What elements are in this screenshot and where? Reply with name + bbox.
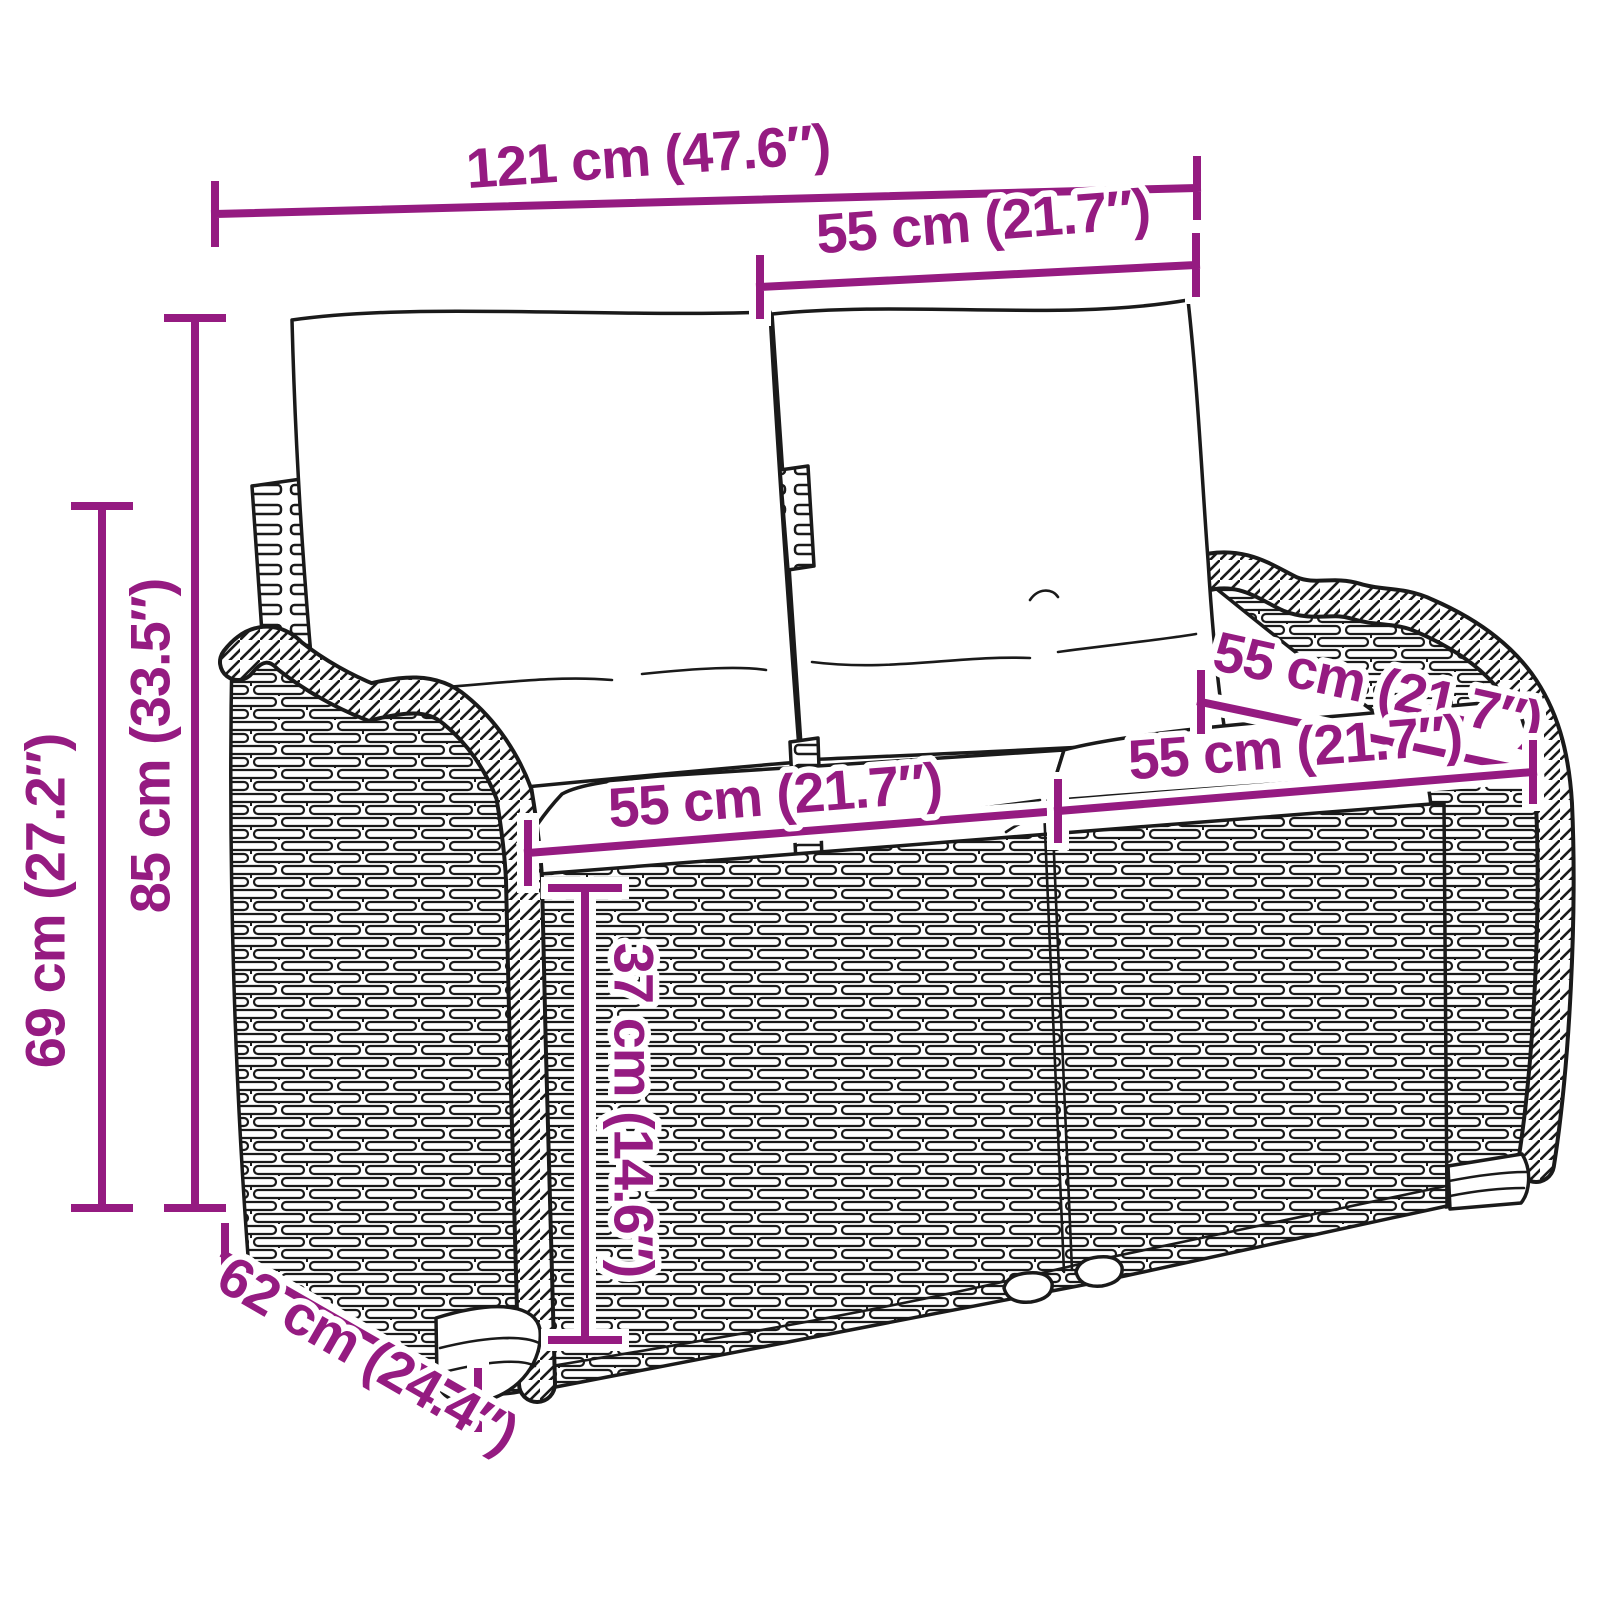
dimension-diagram-page: 121 cm (47.6″) 55 cm (21.7″) 85 cm (33.5… [0, 0, 1600, 1600]
back-cushion-right-body [772, 300, 1226, 760]
dimension-backrest-height: 69 cm (27.2″) [14, 506, 130, 1208]
back-cushion-right [772, 300, 1226, 760]
foot-center-left [1004, 1273, 1052, 1303]
sofa-line-art [231, 300, 1556, 1403]
dimension-label-total-height: 85 cm (33.5″) [119, 579, 182, 913]
dimension-label-seat-height: 37 cm (14.6″) [603, 943, 666, 1277]
seat-box [540, 803, 1447, 1390]
seat-box-front [540, 803, 1447, 1390]
dimension-label-total-width: 121 cm (47.6″) [464, 112, 832, 200]
garden-bench-dimension-diagram: 121 cm (47.6″) 55 cm (21.7″) 85 cm (33.5… [0, 0, 1600, 1600]
back-gap-rattan-upper [780, 466, 814, 570]
foot-center-right [1076, 1257, 1122, 1287]
dimension-total-height: 85 cm (33.5″) [119, 318, 223, 1208]
dimension-label-backrest-height: 69 cm (27.2″) [14, 734, 77, 1068]
